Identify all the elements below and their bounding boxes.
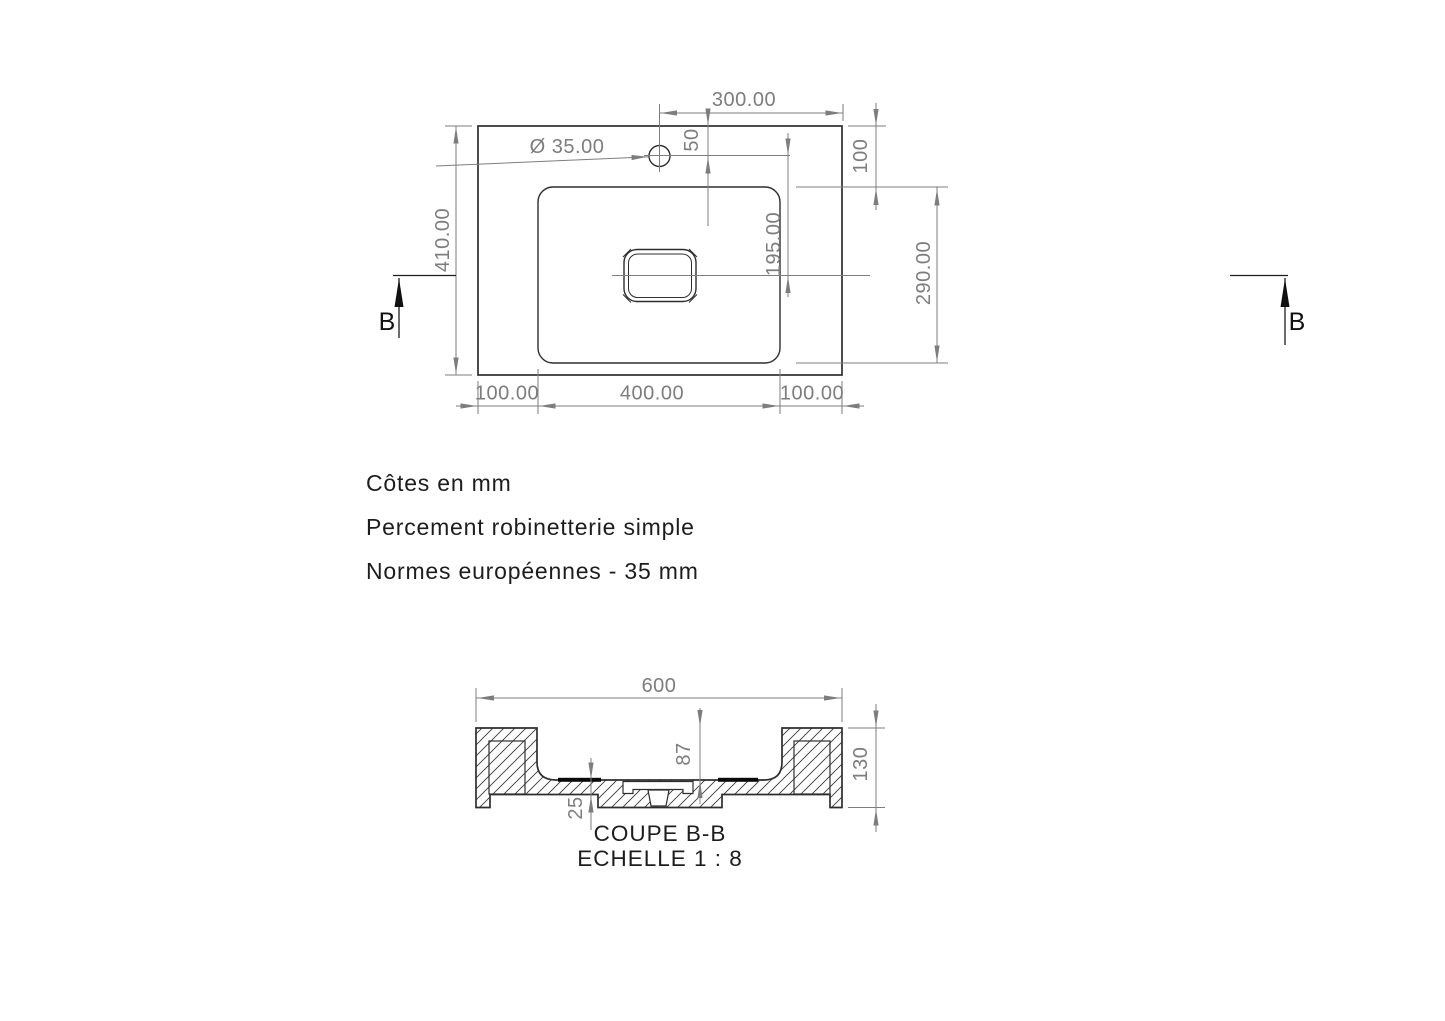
note-drilling: Percement robinetterie simple	[366, 514, 695, 540]
dim-basin-length-label: 290.00	[913, 241, 935, 305]
dim-basin-depth-label: 87	[673, 742, 695, 765]
dim-total-height-label: 410.00	[432, 208, 454, 272]
dim-margin-right-label: 100.00	[780, 383, 844, 405]
dim-section-height-label: 130	[850, 747, 872, 782]
dim-basin-length: 290.00	[913, 188, 937, 364]
dim-section-width-label: 600	[642, 675, 677, 697]
dim-hole-diameter-label: Ø 35.00	[530, 136, 605, 158]
section-arrow-left-icon	[395, 279, 404, 308]
technical-drawing: 410.00 100.00 400.00 100.00 300.00 50	[0, 0, 1445, 1021]
dim-hole-from-top-label: 50	[681, 128, 703, 151]
notes-block: Côtes en mm Percement robinetterie simpl…	[366, 470, 699, 584]
section-title: COUPE B-B	[594, 821, 727, 846]
dim-margin-left-label: 100.00	[475, 383, 539, 405]
dim-rim-right: 100	[850, 103, 876, 210]
section-scale: ECHELLE 1 : 8	[577, 846, 743, 871]
dim-hole-from-right: 300.00	[660, 89, 844, 113]
drawing-sheet: 410.00 100.00 400.00 100.00 300.00 50	[0, 0, 1445, 1021]
note-standard: Normes européennes - 35 mm	[366, 558, 699, 584]
section-arrow-left: B	[379, 276, 456, 339]
dim-hole-to-drain: 195.00	[763, 133, 788, 297]
section-view: 600 87 130 25 COUPE B-B ECHELLE 1 : 8	[476, 675, 885, 871]
section-arrow-left-label: B	[379, 308, 396, 336]
note-units: Côtes en mm	[366, 470, 512, 496]
dim-hole-from-right-label: 300.00	[712, 89, 776, 111]
dim-section-height: 130	[848, 704, 885, 832]
dim-rim-right-label: 100	[850, 139, 872, 174]
dim-bottom-thickness-label: 25	[565, 796, 587, 819]
section-arrow-right-icon	[1281, 279, 1290, 308]
dim-hole-diameter: Ø 35.00	[436, 136, 648, 166]
top-view: 410.00 100.00 400.00 100.00 300.00 50	[379, 89, 1306, 414]
dim-hole-from-top: 50	[681, 110, 708, 226]
section-arrow-right: B	[1230, 276, 1305, 346]
dim-total-height: 410.00	[432, 126, 456, 375]
dim-bottom-chain: 100.00 400.00 100.00	[456, 383, 864, 407]
dim-hole-to-drain-label: 195.00	[763, 212, 785, 276]
dim-basin-width-label: 400.00	[620, 383, 684, 405]
section-arrow-right-label: B	[1289, 308, 1306, 336]
dim-section-width: 600	[476, 675, 842, 722]
